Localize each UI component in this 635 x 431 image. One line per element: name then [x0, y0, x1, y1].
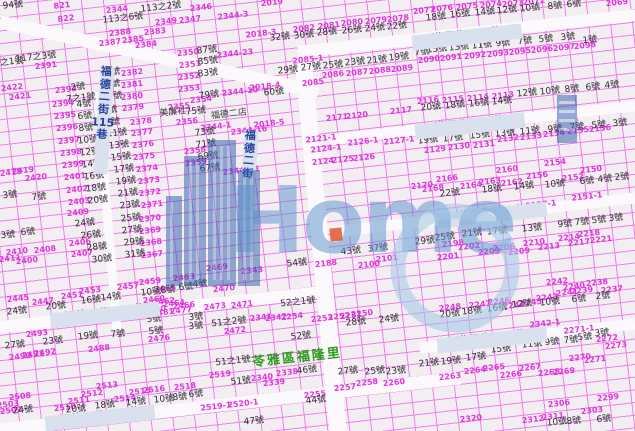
house-number-label: 113之6號 — [102, 12, 144, 25]
parcel-number-label: 2127-1 — [383, 135, 415, 146]
house-number-label: 3號 — [188, 313, 204, 324]
house-number-label: 10號 — [544, 179, 565, 190]
house-number-label: 18號 — [461, 306, 482, 317]
parcel-number-label: 2519 — [208, 370, 231, 380]
house-number-label: 18號 — [425, 12, 446, 23]
house-number-label: 8號 — [547, 2, 563, 13]
house-number-label: 71號 — [195, 139, 216, 150]
house-number-label: 73號 — [194, 127, 215, 138]
parcel-number-label: 2269 — [552, 367, 575, 377]
parcel-number-label: 2221 — [589, 235, 612, 245]
parcel-number-label: 2306 — [547, 399, 570, 409]
house-number-label: 54號 — [286, 258, 307, 269]
house-number-label: 60號 — [263, 87, 284, 98]
parcel-number-label: 2346 — [189, 3, 212, 13]
house-number-label: 10號 — [546, 417, 567, 428]
parcel-number-label: 2271 — [583, 355, 606, 365]
house-number-label: 20號 — [420, 102, 441, 113]
house-number-label: 4號 — [597, 175, 613, 186]
parcel-number-label: 2129 — [423, 145, 446, 155]
parcel-number-label: 2154 — [543, 158, 566, 168]
parcel-number-label: 2353 — [177, 84, 200, 94]
house-number-label: 4號 — [604, 81, 620, 92]
house-number-label: 27號 — [4, 340, 25, 351]
parcel-number-label: 2091 — [439, 53, 462, 63]
house-number-label: 20號 — [439, 309, 460, 320]
house-number-label: 22號 — [439, 188, 460, 199]
house-number-label: 9號 — [557, 220, 573, 231]
parcel-number-label: 2409 — [66, 208, 89, 218]
house-number-label: 6號 — [178, 283, 194, 294]
house-number-label: 7號 — [31, 193, 47, 204]
parcel-number-label: 2160 — [495, 165, 518, 175]
house-number-label: 22號 — [386, 21, 407, 32]
house-number-label: 14號 — [474, 7, 495, 18]
parcel-number-label: 2373 — [137, 176, 160, 186]
parcel-number-label: 2396 — [55, 123, 78, 133]
house-number-label: 5號 — [148, 327, 164, 338]
house-number-label: 30號 — [293, 30, 314, 41]
house-number-label: 37號 — [367, 243, 388, 254]
house-number-label: 75號 — [185, 106, 206, 117]
parcel-number-label: 2344-23 — [216, 48, 253, 60]
house-number-label: 83號 — [197, 68, 218, 79]
house-number-label: 3號 — [608, 214, 624, 225]
house-number-label: 28號 — [86, 242, 107, 253]
house-number-label: 1號 — [582, 36, 598, 47]
parcel-number-label: 2209 — [507, 247, 530, 257]
house-number-label: 17號 — [465, 352, 486, 363]
parcel-number-label: 2473 — [203, 302, 226, 312]
parcel-number-label: 2400 — [15, 256, 38, 266]
house-number-label: 7號 — [569, 123, 585, 134]
house-number-label: 24號 — [378, 314, 399, 325]
house-number-label: 94號 — [2, 0, 23, 11]
parcel-number-label: 2087 — [345, 68, 368, 78]
parcel-number-label: 2124-1 — [310, 143, 342, 154]
house-number-label: 10號 — [539, 86, 560, 97]
parcel-number-label: 2344-10 — [221, 86, 258, 98]
house-number-label: 6號 — [20, 228, 36, 239]
house-number-label: 43號 — [340, 246, 361, 257]
house-number-label: 28號 — [316, 27, 337, 38]
parcel-number-label: 2018-5 — [253, 118, 285, 129]
house-number-label: 16號 — [449, 9, 470, 20]
parcel-number-label: 2344-3 — [217, 10, 249, 21]
house-number-label: 4號 — [192, 280, 208, 291]
parcel-number-label: 2260 — [382, 378, 405, 388]
house-number-label: 25號 — [364, 366, 385, 377]
house-number-label: 24號 — [12, 405, 33, 416]
parcel-number-label: 2093 — [486, 49, 509, 59]
parcel-number-label: 2320 — [459, 414, 482, 424]
parcel-number-label: 2312 — [521, 415, 544, 425]
parcel-number-label: 2188 — [314, 259, 337, 269]
house-number-label: 15號 — [110, 152, 131, 163]
house-number-label: 14號 — [491, 96, 512, 107]
parcel-number-label: 2258 — [355, 378, 378, 388]
house-number-label: 3號 — [2, 191, 18, 202]
house-number-label: 44號 — [305, 395, 326, 406]
house-number-label: 7號 — [563, 336, 579, 347]
house-number-label: 18號 — [481, 184, 502, 195]
parcel-number-label: 2372 — [138, 188, 161, 198]
house-number-label: 19號 — [388, 52, 409, 63]
house-number-label: 67號 — [199, 163, 220, 174]
house-number-label: 19號 — [77, 331, 98, 342]
house-number-label: 5號 — [577, 333, 593, 344]
house-number-label: 7號 — [574, 218, 590, 229]
house-number-label: 3號 — [612, 119, 628, 130]
house-number-label: 29號 — [277, 65, 298, 76]
house-number-label: 47號 — [243, 416, 264, 427]
house-number-label: 51號 — [230, 376, 251, 387]
house-number-label: 5號 — [538, 35, 554, 46]
house-number-label: 9之1號 — [0, 57, 24, 69]
parcel-number-label: 2520-1 — [227, 398, 259, 409]
parcel-number-label: 2096 — [530, 45, 553, 55]
house-number-label: 19號 — [115, 176, 136, 187]
parcel-number-label: 2374 — [135, 164, 158, 174]
parcel-number-label: 2097 — [552, 43, 575, 53]
store-label-branch: 福德二店 — [211, 109, 248, 122]
parcel-number-label: 2383 — [143, 27, 166, 37]
parcel-number-label: 2131 — [472, 140, 495, 150]
parcel-number-label: 2273 — [604, 341, 627, 351]
house-number-label: 18號 — [444, 100, 465, 111]
house-number-label: 46號 — [296, 365, 317, 376]
house-number-label: 85號 — [197, 56, 218, 67]
house-number-label: 21號 — [461, 228, 482, 239]
house-number-label: 5號 — [591, 121, 607, 132]
parcel-number-label: 2120 — [345, 111, 368, 121]
house-number-label: 12號 — [516, 88, 537, 99]
parcel-number-label: 822 — [57, 14, 74, 24]
parcel-number-label: 2343 — [240, 266, 263, 276]
house-number-label: 29號 — [414, 236, 435, 247]
parcel-number-label: 2469 — [205, 263, 228, 273]
parcel-number-label: 821 — [53, 1, 70, 11]
house-number-label: 12號 — [511, 299, 532, 310]
house-number-label: 6號 — [585, 83, 601, 94]
parcel-number-label: 2263 — [438, 372, 461, 382]
house-number-label: 52號 — [290, 331, 311, 342]
house-number-label: 4號 — [76, 100, 92, 111]
house-number-label: 9號 — [547, 125, 563, 136]
house-number-label: 23號 — [119, 200, 140, 211]
house-number-label: 28號 — [345, 317, 366, 328]
parcel-number-label: 2378 — [129, 117, 152, 127]
house-number-label: 26號 — [341, 25, 362, 36]
parcel-number-label: 2257 — [333, 383, 356, 393]
parcel-number-label: 2408 — [33, 245, 56, 255]
house-number-label: 14號 — [513, 181, 534, 192]
parcel-number-label: 2089 — [390, 64, 413, 74]
parcel-number-label: 2513 — [95, 381, 118, 391]
house-number-label: 26號 — [80, 230, 101, 241]
house-number-label: 3號 — [0, 231, 16, 242]
parcel-number-label: 2213 — [537, 242, 560, 252]
parcel-number-label: 2445 — [6, 294, 29, 304]
parcel-number-label: 2384 — [134, 40, 157, 50]
parcel-number-label: 2420 — [24, 173, 47, 183]
house-number-label: 79號 — [198, 90, 219, 101]
house-number-label: 6號 — [188, 390, 204, 401]
house-number-label: 51之1號 — [215, 356, 251, 369]
house-number-label: 113之2號 — [140, 1, 182, 14]
house-number-label: 3號 — [594, 329, 610, 340]
parcel-number-label: 2092 — [463, 51, 486, 61]
parcel-number-label: 2371 — [140, 200, 163, 210]
parcel-number-label: 2085 — [301, 78, 324, 88]
parcel-number-label: 2356 — [175, 117, 198, 127]
house-number-label: 16號 — [486, 303, 507, 314]
highlight-marker-icon — [329, 227, 342, 241]
parcel-number-label: 2382 — [120, 68, 143, 78]
house-number-label: 8號 — [564, 85, 580, 96]
house-number-label: 16號 — [80, 295, 101, 306]
house-number-label: 12號 — [496, 5, 517, 16]
house-number-label: 24號 — [74, 218, 95, 229]
house-number-label: 17號 — [486, 226, 507, 237]
parcel-number-label: 2069 — [605, 0, 628, 8]
house-number-label: 6號 — [596, 415, 612, 426]
parcel-number-label: 2379 — [121, 103, 144, 113]
house-number-label: 13號 — [521, 223, 542, 234]
house-number-label: 3號 — [560, 33, 576, 44]
house-number-label: 21號 — [418, 358, 439, 369]
house-number-label: 27號 — [300, 62, 321, 73]
parcel-number-label: 2421 — [8, 92, 31, 102]
parcel-number-label: 2254 — [280, 312, 303, 322]
parcel-number-label: 2488 — [87, 344, 110, 354]
parcel-number-label: 2471 — [230, 300, 253, 310]
house-number-label: 32號 — [269, 32, 290, 43]
parcel-number-label: 2338 — [275, 368, 298, 378]
parcel-number-label: 2095 — [508, 47, 531, 57]
house-number-label: 69號 — [197, 151, 218, 162]
house-number-label: 7號 — [110, 330, 126, 341]
house-number-label: 2號 — [614, 173, 630, 184]
house-number-label: 52之1號 — [280, 297, 316, 310]
house-number-label: 21號 — [117, 188, 138, 199]
parcel-number-label: 2492 — [33, 348, 56, 358]
parcel-number-label: 2125 — [331, 155, 354, 165]
parcel-number-label: 2299 — [596, 393, 619, 403]
parcel-number-label: 2217 — [567, 238, 590, 248]
parcel-number-label: 2339 — [262, 378, 285, 388]
house-number-label: 19號 — [440, 356, 461, 367]
house-number-label: 2號 — [595, 292, 611, 303]
house-number-label: 2號 — [70, 83, 86, 94]
parcel-number-label: 2391 — [34, 61, 57, 71]
parcel-number-label: 2376 — [131, 140, 154, 150]
house-number-label: 16號 — [468, 98, 489, 109]
house-number-label: 24號 — [364, 23, 385, 34]
parcel-number-label: 2126-1 — [347, 136, 379, 147]
map-canvas[interactable]: 8218222344234623472349238323882385238723… — [0, 0, 635, 431]
parcel-number-label: 2347 — [178, 15, 201, 25]
parcel-number-label: 2370 — [138, 214, 161, 224]
parcel-number-label: 2375 — [132, 152, 155, 162]
house-number-label: 8號 — [566, 417, 582, 428]
house-number-label: 10號 — [519, 3, 540, 14]
parcel-number-label: 2151-1 — [571, 191, 603, 202]
house-number-label: 5號 — [591, 216, 607, 227]
house-number-label: 6號 — [566, 0, 582, 10]
parcel-number-label: 2395 — [53, 111, 76, 121]
map-labels: 8218222344234623472349238323882385238723… — [0, 0, 635, 431]
parcel-number-label: 2387 — [98, 38, 121, 48]
house-number-label: 17號 — [113, 164, 134, 175]
house-number-label: 30號 — [91, 254, 112, 265]
house-number-label: 14號 — [100, 292, 121, 303]
parcel-number-label: 2470 — [212, 284, 235, 294]
parcel-number-label: 2088 — [368, 66, 391, 76]
house-number-label: 8號 — [172, 393, 188, 404]
parcel-number-label: 2381 — [120, 80, 143, 90]
parcel-number-label: 2201 — [436, 252, 459, 262]
house-number-label: 18號 — [85, 183, 106, 194]
parcel-number-label: 2150 — [579, 165, 602, 175]
house-number-label: 10號 — [539, 297, 560, 308]
house-number-label: 6號 — [571, 295, 587, 306]
house-number-label: 6號 — [579, 177, 595, 188]
house-number-label: 20號 — [87, 195, 108, 206]
parcel-number-label: 2019 — [260, 0, 283, 8]
house-number-label: 24號 — [6, 306, 27, 317]
house-number-label: 8號 — [160, 286, 176, 297]
parcel-number-label: 2126 — [352, 153, 375, 163]
parcel-number-label: 2377 — [130, 128, 153, 138]
parcel-number-label: 2117 — [389, 106, 412, 116]
house-number-label: 3號 — [188, 322, 204, 333]
parcel-number-label: 2380 — [120, 92, 143, 102]
house-number-label: 27號 — [337, 366, 358, 377]
parcel-number-label: 2101 — [375, 254, 398, 264]
house-number-label: 23號 — [42, 336, 63, 347]
